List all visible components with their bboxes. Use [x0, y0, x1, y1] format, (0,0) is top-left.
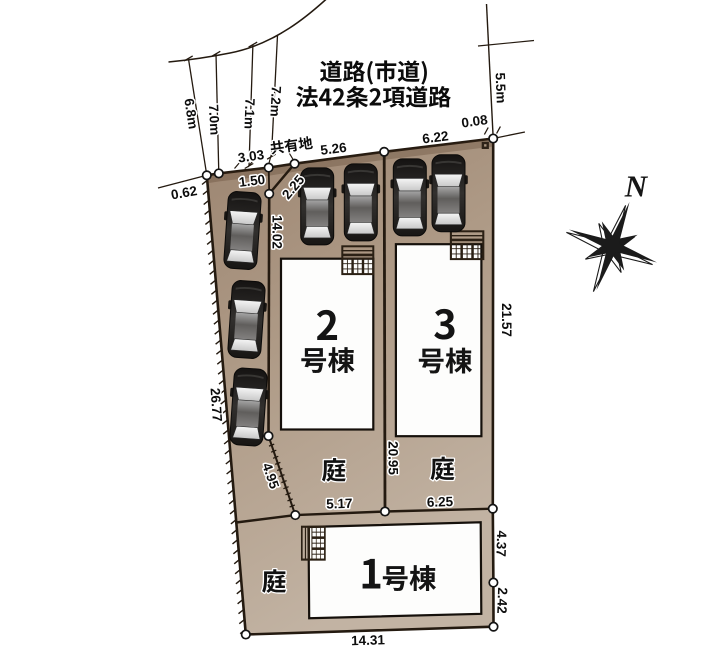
svg-text:5.17: 5.17: [326, 496, 353, 512]
svg-text:14.02: 14.02: [270, 215, 285, 249]
svg-text:2.42: 2.42: [494, 587, 510, 614]
svg-text:6.25: 6.25: [427, 494, 454, 510]
svg-text:0.08: 0.08: [460, 112, 489, 131]
svg-text:N: N: [624, 169, 649, 204]
svg-text:14.31: 14.31: [351, 632, 386, 648]
svg-text:6.8m: 6.8m: [181, 97, 201, 130]
svg-text:21.57: 21.57: [499, 303, 514, 337]
svg-text:7.0m: 7.0m: [206, 104, 223, 136]
svg-text:5.26: 5.26: [320, 140, 348, 158]
svg-text:20.95: 20.95: [386, 441, 401, 475]
svg-text:4.37: 4.37: [493, 530, 509, 557]
svg-text:0.62: 0.62: [170, 183, 198, 202]
svg-text:5.5m: 5.5m: [493, 72, 509, 103]
svg-text:6.22: 6.22: [421, 128, 449, 146]
svg-text:26.77: 26.77: [208, 387, 225, 422]
svg-text:1.50: 1.50: [238, 172, 266, 190]
svg-text:7.2m: 7.2m: [267, 86, 284, 118]
svg-text:3.03: 3.03: [237, 147, 266, 166]
svg-text:7.1m: 7.1m: [241, 98, 257, 129]
